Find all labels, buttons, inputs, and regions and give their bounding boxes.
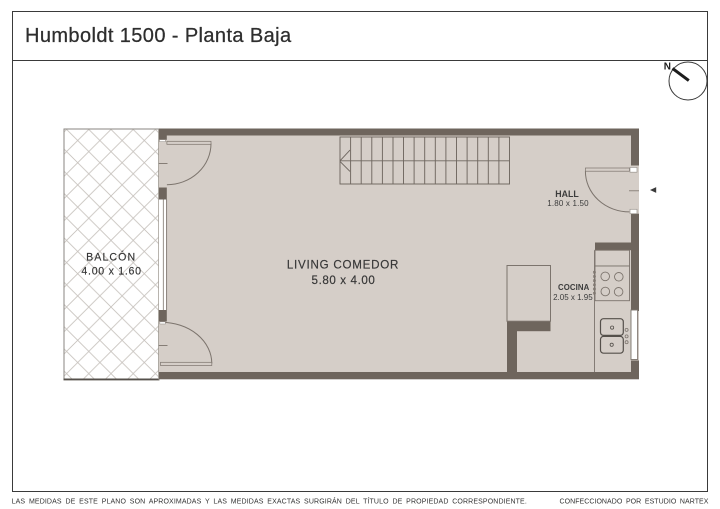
svg-text:1.80 x 1.50: 1.80 x 1.50	[547, 199, 589, 208]
svg-text:5.80 x 4.00: 5.80 x 4.00	[312, 274, 376, 287]
svg-text:N: N	[664, 62, 671, 73]
svg-text:HALL: HALL	[555, 189, 579, 199]
svg-text:COCINA: COCINA	[558, 283, 590, 292]
svg-text:LAS MEDIDAS DE ESTE PLANO SON: LAS MEDIDAS DE ESTE PLANO SON APROXIMADA…	[12, 497, 527, 506]
svg-text:BALCÓN: BALCÓN	[86, 251, 136, 264]
svg-text:4.00 x 1.60: 4.00 x 1.60	[81, 266, 141, 278]
svg-text:2.05 x 1.95: 2.05 x 1.95	[553, 293, 593, 302]
svg-text:LIVING COMEDOR: LIVING COMEDOR	[287, 259, 399, 272]
svg-text:CONFECCIONADO POR ESTUDIO NART: CONFECCIONADO POR ESTUDIO NARTEX	[559, 499, 708, 506]
svg-text:Humboldt 1500 - Planta Baja: Humboldt 1500 - Planta Baja	[25, 25, 292, 47]
